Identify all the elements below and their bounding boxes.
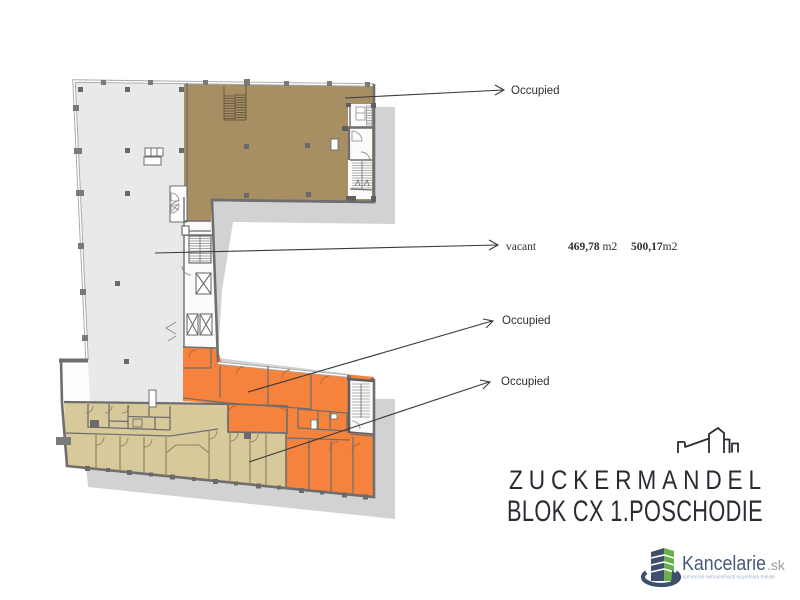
svg-text:vacant: vacant [506,241,537,253]
svg-text:Occupied: Occupied [502,315,551,327]
svg-text:469,78 m2: 469,78 m2 [568,241,617,253]
svg-text:500,17m2: 500,17m2 [631,241,678,253]
svg-text:ZUCKERMANDEL: ZUCKERMANDEL [509,465,767,495]
svg-text:BLOK CX 1.POSCHODIE: BLOK CX 1.POSCHODIE [507,495,763,528]
svg-text:Occupied: Occupied [501,376,550,388]
svg-text:Kancelarie: Kancelarie [682,553,766,575]
svg-text:.sk: .sk [767,557,786,573]
svg-text:komerčné nehnuteľnosti na jedn: komerčné nehnuteľnosti na jednom mieste [683,575,775,581]
svg-text:Occupied: Occupied [511,85,560,97]
